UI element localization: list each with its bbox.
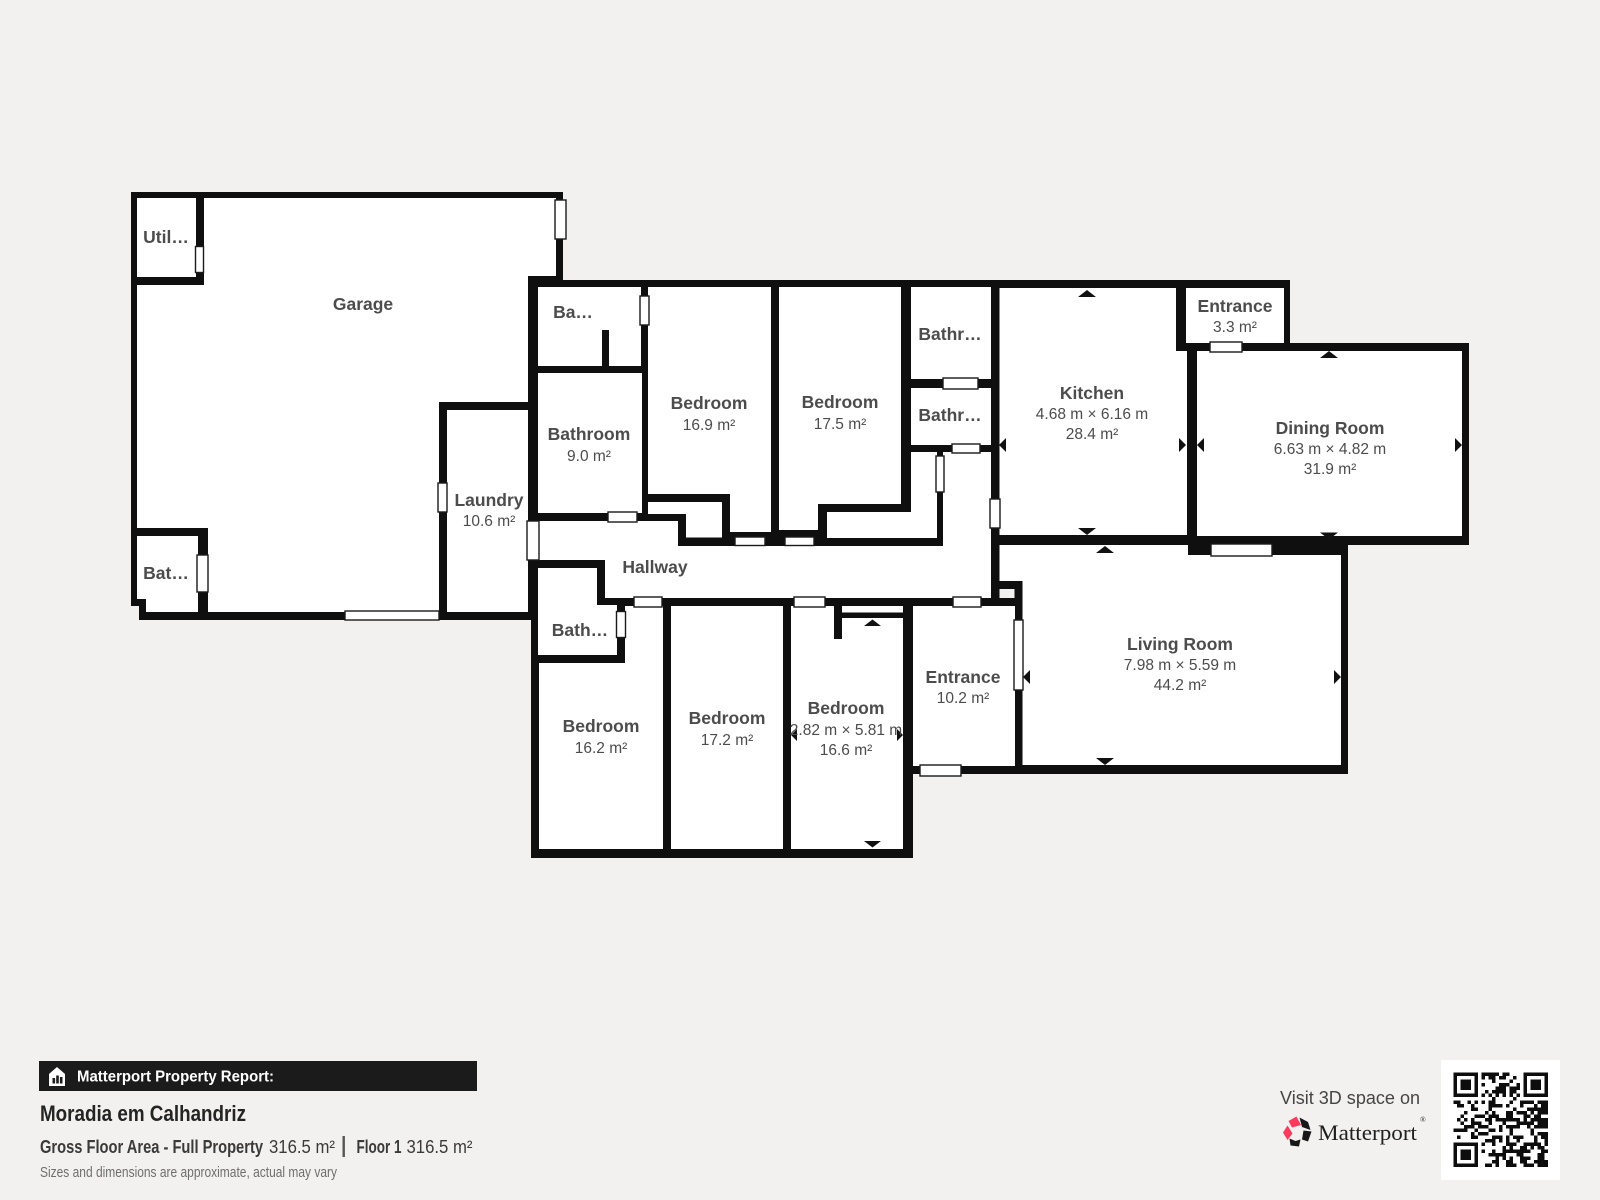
svg-text:Kitchen: Kitchen <box>1060 383 1124 403</box>
svg-text:16.9 m²: 16.9 m² <box>683 417 736 434</box>
svg-text:Sizes and dimensions are appro: Sizes and dimensions are approximate, ac… <box>40 1164 337 1181</box>
svg-text:17.2 m²: 17.2 m² <box>701 732 754 749</box>
svg-text:Bedroom: Bedroom <box>671 393 748 413</box>
svg-text:4.68 m × 6.16 m: 4.68 m × 6.16 m <box>1036 406 1148 423</box>
svg-text:Bedroom: Bedroom <box>689 708 766 728</box>
svg-text:10.2 m²: 10.2 m² <box>937 690 990 707</box>
svg-text:6.63 m × 4.82 m: 6.63 m × 4.82 m <box>1274 441 1386 458</box>
svg-text:Bathr…: Bathr… <box>918 324 981 344</box>
svg-text:Util…: Util… <box>143 227 189 247</box>
svg-text:Bedroom: Bedroom <box>563 716 640 736</box>
svg-text:10.6 m²: 10.6 m² <box>463 513 516 530</box>
svg-text:Bath…: Bath… <box>552 620 608 640</box>
svg-text:Ba…: Ba… <box>553 302 593 322</box>
svg-text:316.5 m²: 316.5 m² <box>407 1137 473 1157</box>
svg-text:31.9 m²: 31.9 m² <box>1304 461 1357 478</box>
svg-text:16.6 m²: 16.6 m² <box>820 742 873 759</box>
svg-text:Bat…: Bat… <box>143 563 189 583</box>
svg-text:316.5 m²: 316.5 m² <box>269 1137 335 1157</box>
svg-text:9.0 m²: 9.0 m² <box>567 448 611 465</box>
svg-text:Floor 1: Floor 1 <box>357 1137 402 1157</box>
svg-text:Bedroom: Bedroom <box>802 392 879 412</box>
svg-text:7.98 m × 5.59 m: 7.98 m × 5.59 m <box>1124 657 1236 674</box>
svg-text:Entrance: Entrance <box>1198 296 1273 316</box>
svg-text:Matterport: Matterport <box>1318 1120 1417 1145</box>
svg-text:Bedroom: Bedroom <box>808 698 885 718</box>
svg-text:Entrance: Entrance <box>926 667 1001 687</box>
svg-text:28.4 m²: 28.4 m² <box>1066 426 1119 443</box>
svg-text:17.5 m²: 17.5 m² <box>814 416 867 433</box>
svg-text:Bathroom: Bathroom <box>548 424 631 444</box>
svg-text:®: ® <box>1420 1115 1426 1124</box>
svg-text:Garage: Garage <box>333 294 394 314</box>
svg-text:Gross Floor Area - Full Proper: Gross Floor Area - Full Property <box>40 1137 263 1157</box>
svg-text:Living Room: Living Room <box>1127 634 1233 654</box>
svg-text:Moradia em Calhandriz: Moradia em Calhandriz <box>40 1101 246 1126</box>
svg-text:Bathr…: Bathr… <box>918 405 981 425</box>
svg-text:Dining Room: Dining Room <box>1276 418 1385 438</box>
svg-text:Matterport Property Report:: Matterport Property Report: <box>77 1069 274 1086</box>
svg-text:16.2 m²: 16.2 m² <box>575 740 628 757</box>
svg-text:3.3 m²: 3.3 m² <box>1213 319 1257 336</box>
svg-text:Visit 3D space on: Visit 3D space on <box>1280 1088 1420 1108</box>
svg-text:2.82 m × 5.81 m: 2.82 m × 5.81 m <box>790 722 902 739</box>
svg-text:Laundry: Laundry <box>454 490 523 510</box>
svg-text:Hallway: Hallway <box>622 557 687 577</box>
svg-text:44.2 m²: 44.2 m² <box>1154 677 1207 694</box>
